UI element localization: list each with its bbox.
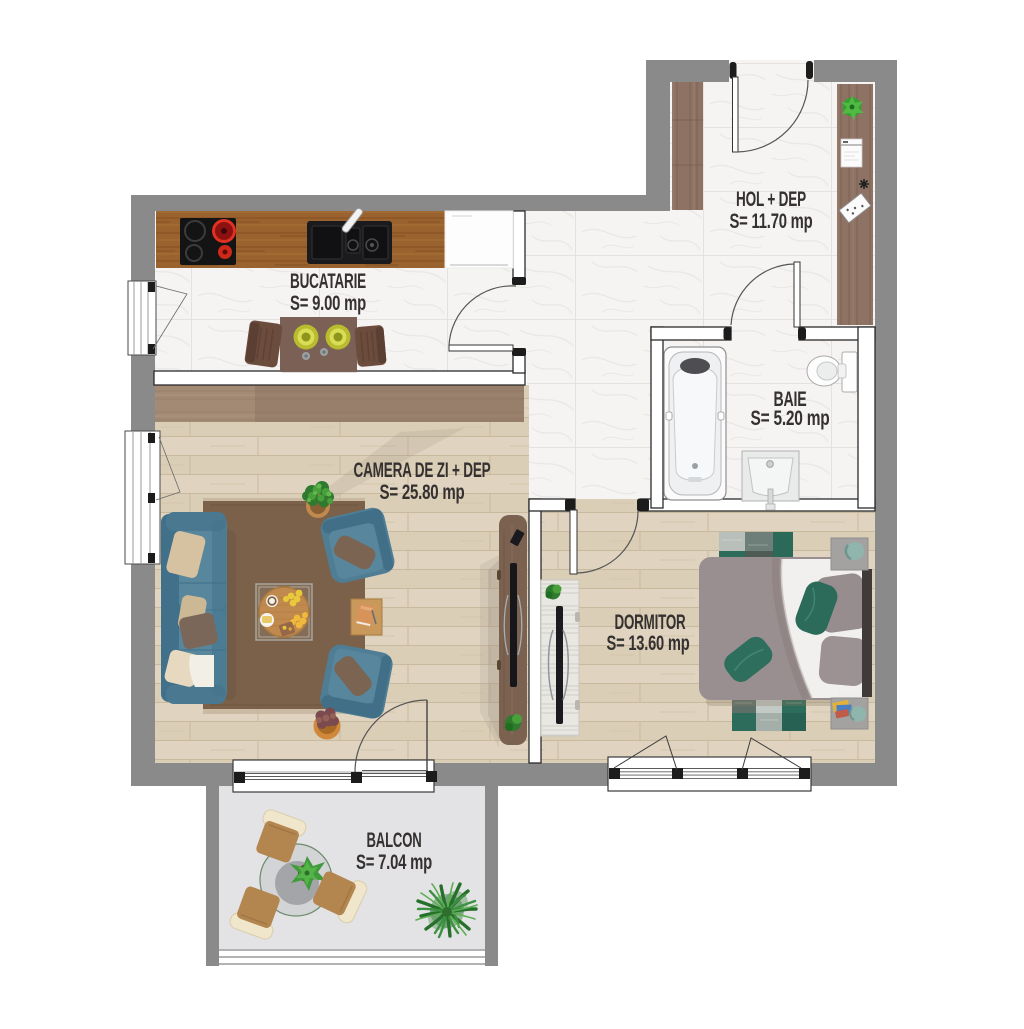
svg-text:S= 11.70 mp: S= 11.70 mp xyxy=(730,210,813,233)
svg-text:S= 7.04 mp: S= 7.04 mp xyxy=(356,851,432,874)
svg-text:HOL + DEP: HOL + DEP xyxy=(736,188,806,211)
svg-text:S= 5.20 mp: S= 5.20 mp xyxy=(751,407,830,430)
svg-text:S= 13.60 mp: S= 13.60 mp xyxy=(607,632,690,655)
svg-text:DORMITOR: DORMITOR xyxy=(615,611,686,634)
svg-text:S= 9.00 mp: S= 9.00 mp xyxy=(290,292,366,315)
svg-text:BALCON: BALCON xyxy=(367,829,422,852)
svg-text:BUCATARIE: BUCATARIE xyxy=(290,270,366,293)
svg-text:CAMERA DE ZI + DEP: CAMERA DE ZI + DEP xyxy=(354,459,491,482)
svg-text:S= 25.80 mp: S= 25.80 mp xyxy=(380,481,465,504)
